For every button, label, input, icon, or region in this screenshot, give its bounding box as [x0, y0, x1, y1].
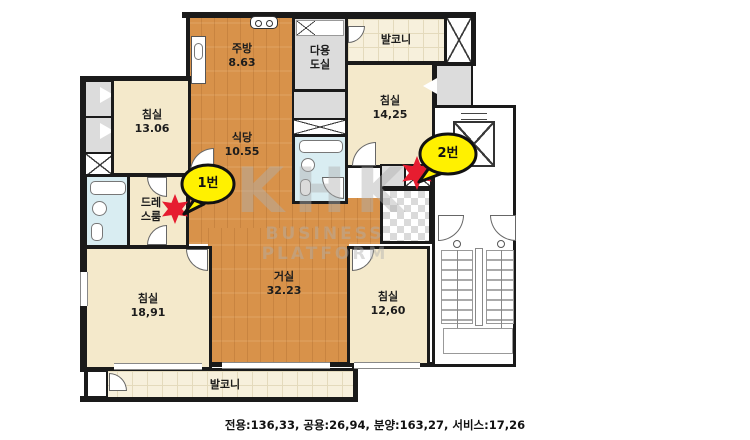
room-name: 다용: [310, 44, 330, 57]
window: [354, 362, 420, 369]
room-label: 침실 14,25: [350, 94, 430, 123]
marker-label: 2번: [417, 142, 479, 161]
room-label: 발코니: [356, 33, 436, 47]
stove-icon: [250, 16, 278, 29]
burner-icon: [266, 20, 273, 27]
door-arc: [490, 215, 516, 241]
room-area: 14,25: [373, 108, 408, 121]
utility-top-strip: [296, 20, 344, 36]
room-name: 스룸: [141, 210, 161, 223]
stair-stringer: [475, 248, 483, 326]
floor-plan: 침실 13.06 드레 스룸 침실 18,91 주방 8.63 식당 10.55: [0, 0, 750, 440]
shaft-x-icon: [445, 16, 473, 64]
window: [80, 272, 88, 306]
room-area: 32.23: [267, 284, 302, 297]
stair-rail: [501, 250, 502, 332]
stair-rail-post: [453, 240, 461, 248]
room-area: 13.06: [135, 122, 170, 135]
balcony-closet: [86, 370, 108, 398]
room-name: 침실: [380, 94, 400, 107]
room-name: 주방: [232, 42, 252, 55]
burner-icon: [255, 20, 262, 27]
bathtub-icon: [90, 181, 126, 195]
bathtub-icon: [299, 140, 343, 153]
window: [222, 362, 330, 369]
room-name: 침실: [138, 292, 158, 305]
room-label: 침실 18,91: [108, 292, 188, 321]
door-arc: [438, 215, 464, 241]
room-name: 드레: [141, 196, 161, 209]
toilet-icon: [91, 223, 103, 241]
room-name: 발코니: [381, 33, 411, 46]
marker-bubble-2[interactable]: 2번: [417, 132, 479, 188]
room-name: 침실: [378, 290, 398, 303]
marker-bubble-1[interactable]: 1번: [178, 162, 238, 218]
room-area: 12,60: [371, 304, 406, 317]
storage: [292, 90, 348, 120]
stair-rail-post: [497, 240, 505, 248]
room-label: 식당 10.55: [202, 131, 282, 160]
room-area: 10.55: [225, 145, 260, 158]
toilet-icon: [300, 179, 311, 196]
closet: [435, 64, 473, 108]
room-label: 주방 8.63: [202, 42, 282, 71]
bathroom-left: [84, 174, 130, 248]
window: [114, 363, 202, 370]
room-name: 침실: [142, 108, 162, 121]
marker-label: 1번: [178, 172, 238, 191]
room-label: 다용 도실: [294, 44, 346, 73]
room-label: 거실 32.23: [244, 270, 324, 299]
room-name: 거실: [274, 270, 294, 283]
elevator-vent-icon: [461, 113, 487, 120]
room-label: 침실 12,60: [348, 290, 428, 319]
room-label: 침실 13.06: [112, 108, 192, 137]
room-name: 식당: [232, 131, 252, 144]
room-name: 발코니: [210, 378, 240, 391]
sink-icon: [301, 158, 315, 172]
room-label: 발코니: [185, 378, 265, 392]
shaft-x-icon: [297, 21, 315, 35]
room-area: 18,91: [131, 306, 166, 319]
room-name: 도실: [310, 58, 330, 71]
area-summary-caption: 전용:136,33, 공용:26,94, 분양:163,27, 서비스:17,2…: [0, 417, 750, 433]
entrance: [380, 188, 432, 244]
closet-door-icon: [423, 78, 437, 94]
room-area: 8.63: [228, 56, 255, 69]
stair-rail: [457, 250, 458, 332]
stair-landing: [443, 328, 513, 354]
stair-flight: [486, 250, 514, 324]
sink-icon: [92, 201, 107, 216]
